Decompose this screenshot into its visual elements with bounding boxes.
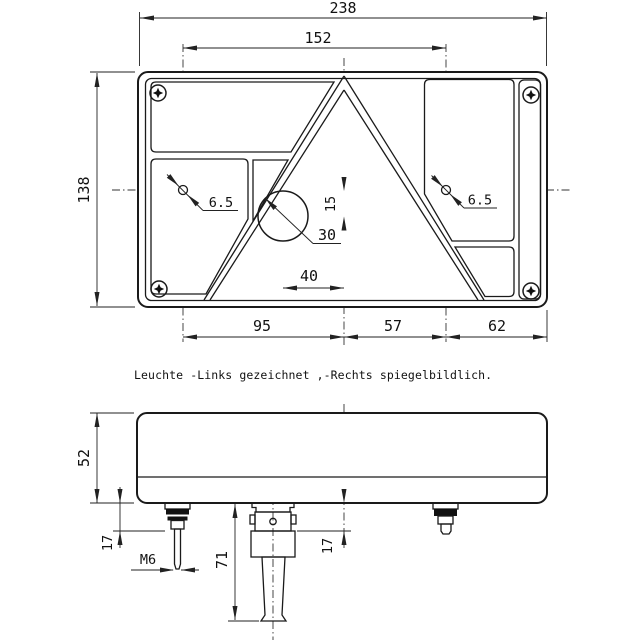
dim-stud-left-label: 17 <box>100 535 116 551</box>
dim-height-total: 138 <box>75 72 135 307</box>
dim-connector-length: 71 <box>213 504 259 621</box>
dim-height-total-label: 138 <box>75 176 93 203</box>
right-mounting-stud <box>433 503 458 534</box>
dim-connector-length-label: 71 <box>213 551 231 569</box>
dim-span-center-label: 57 <box>384 317 402 335</box>
dim-hole-spacing: 152 <box>183 29 446 51</box>
dim-circle-offset-h-label: 40 <box>300 267 318 285</box>
drawing-note: Leuchte -Links gezeichnet ,-Rechts spieg… <box>134 368 492 382</box>
dim-side-height: 52 <box>75 413 134 503</box>
left-mounting-stud <box>165 503 190 569</box>
side-view: 52 17 M6 71 <box>75 404 547 640</box>
dim-span-left-label: 95 <box>253 317 271 335</box>
dim-hole-dia-left-label: 6.5 <box>209 195 233 211</box>
dim-hole-spacing-label: 152 <box>304 29 331 47</box>
dim-hole-dia-right-label: 6.5 <box>468 193 492 209</box>
dim-thread: M6 <box>131 552 199 573</box>
lamp-housing-outline <box>138 72 547 307</box>
dim-width-total-label: 238 <box>329 0 356 17</box>
dim-width-total: 238 <box>140 0 548 66</box>
front-view: 238 152 138 95 5 <box>75 0 572 345</box>
technical-drawing: 238 152 138 95 5 <box>0 0 640 641</box>
dim-bottom-chain: 95 57 62 <box>183 310 547 342</box>
dim-stud-right-label: 17 <box>320 538 336 554</box>
cable-outlet <box>261 557 286 621</box>
dim-span-right-label: 62 <box>488 317 506 335</box>
dim-thread-label: M6 <box>140 552 156 568</box>
drawing-page: 238 152 138 95 5 <box>0 0 640 641</box>
dim-side-height-label: 52 <box>75 449 93 467</box>
dim-circle-offset-v-label: 15 <box>323 196 339 212</box>
dim-circle-dia-label: 30 <box>318 226 336 244</box>
